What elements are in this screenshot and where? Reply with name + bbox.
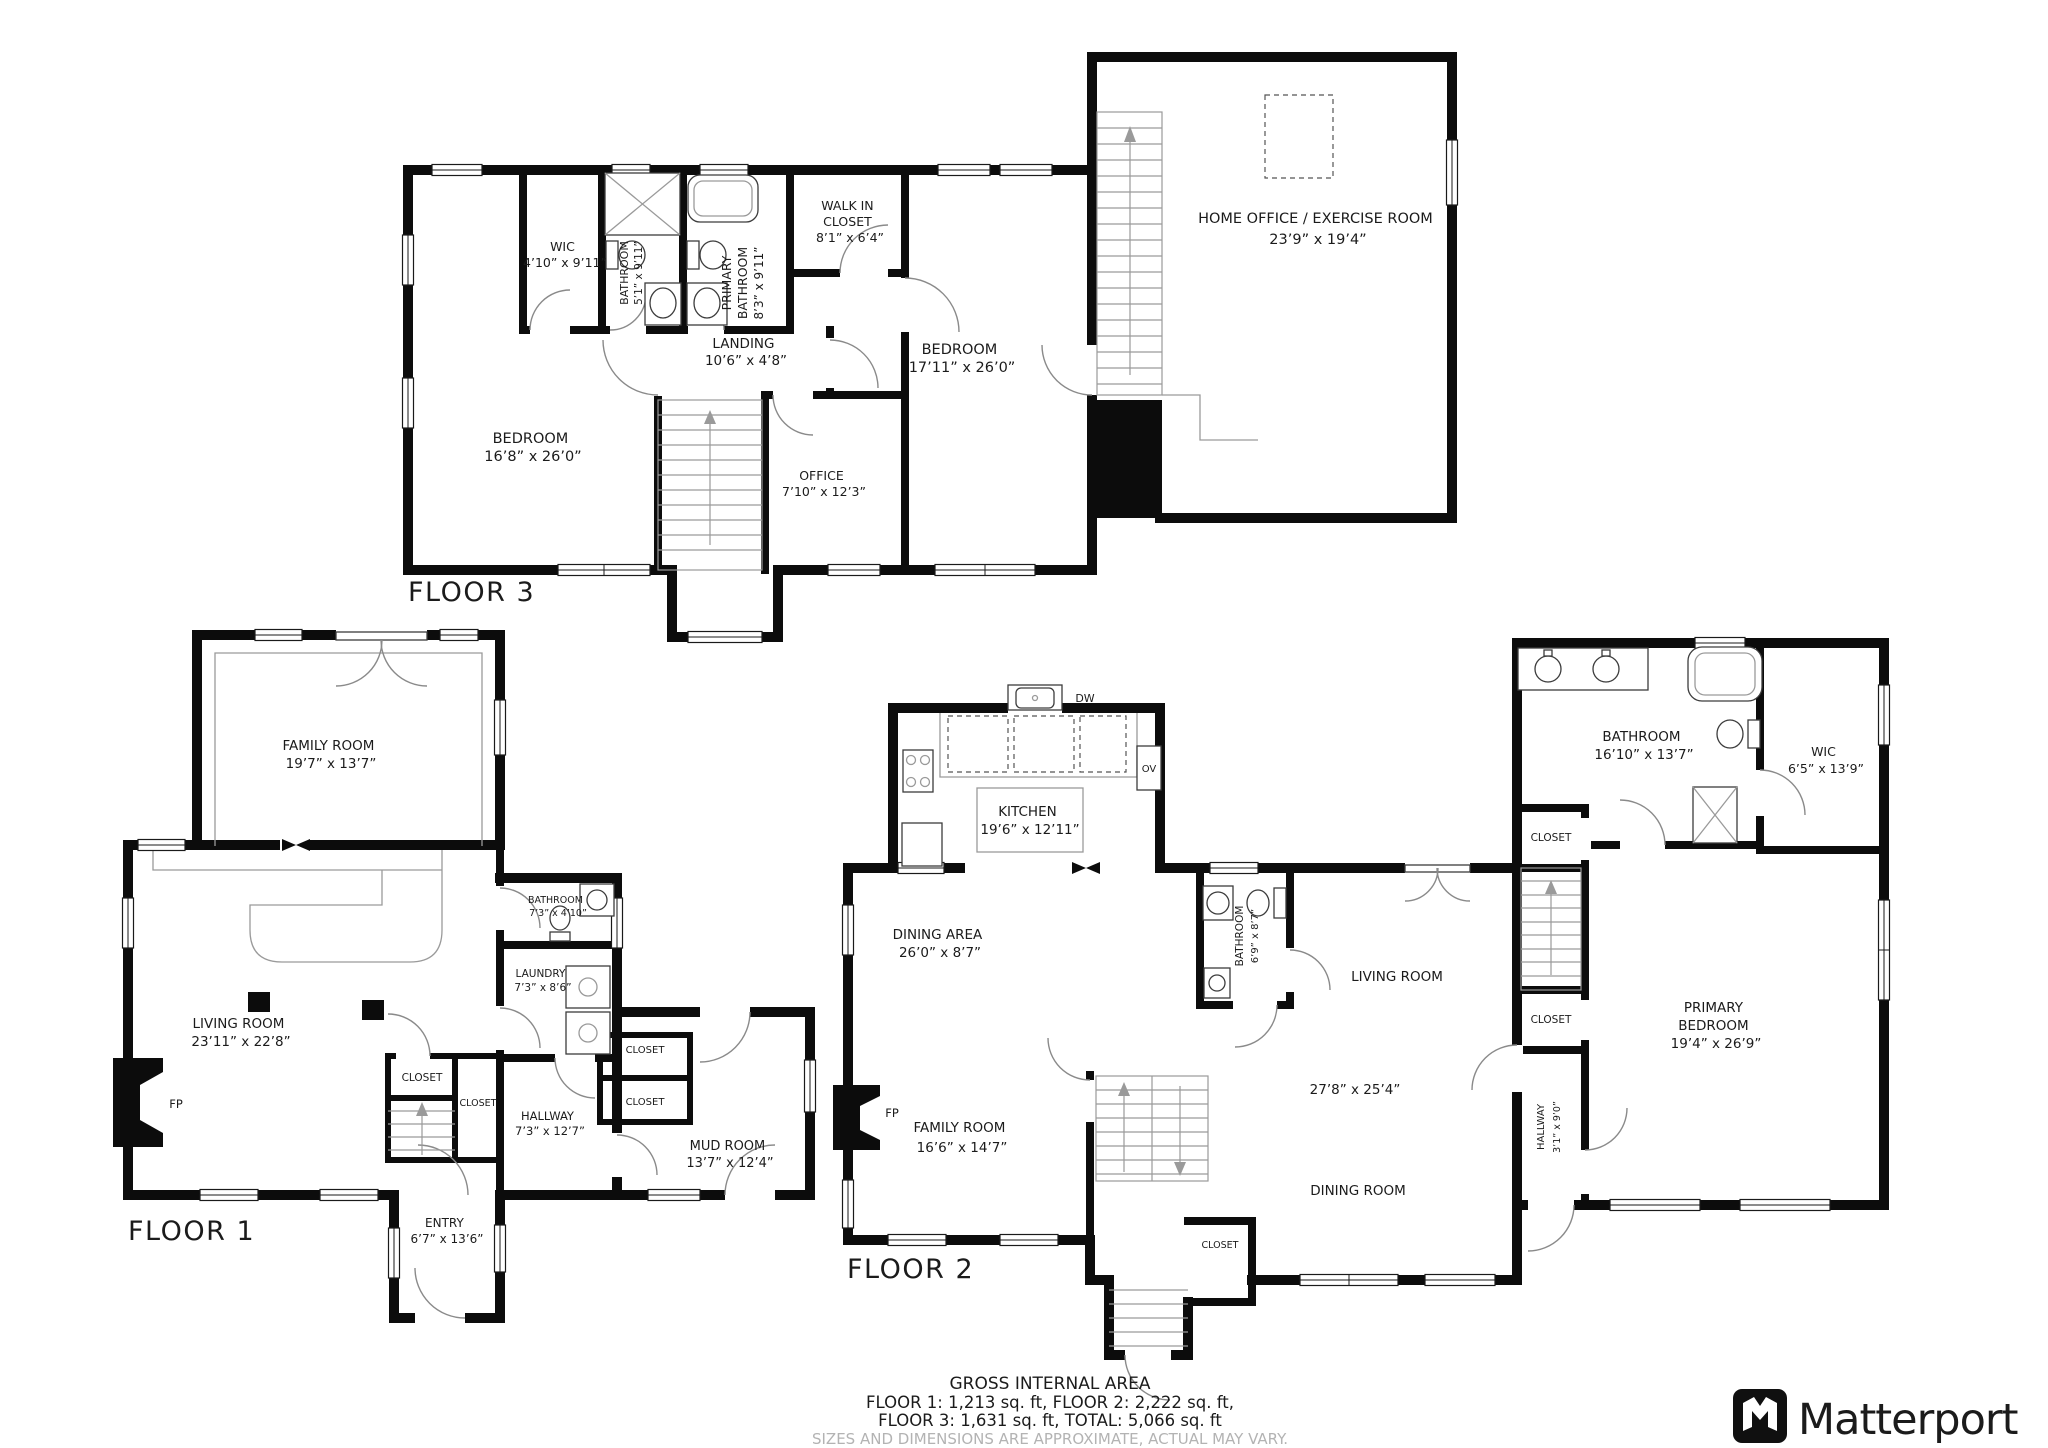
floor3-walk-in-closet-label: WALK IN CLOSET 8’1” x 6’4”: [816, 195, 884, 245]
floor1-bathroom-label: BATHROOM 7’3” x 4’10”: [528, 888, 588, 919]
floor3-plan: BEDROOM 16’8” x 26’0” WIC 4’10” x 9’11” …: [403, 57, 1458, 643]
suite-closet-a-label: CLOSET: [1531, 832, 1572, 844]
vanity-sinks-icon: [1518, 648, 1648, 690]
floor1-windows: [123, 630, 816, 1279]
floor3-labels: BEDROOM 16’8” x 26’0” WIC 4’10” x 9’11” …: [408, 195, 1438, 608]
floor2-fp-label: FP: [885, 1106, 899, 1120]
sink-icon: [645, 283, 681, 325]
floor3-stairs-down-icon: [658, 400, 762, 570]
floor3-title: FLOOR 3: [408, 577, 535, 608]
floor2-bathroom-label: BATHROOM: [1234, 906, 1246, 967]
floor1-stairs-icon: [388, 1102, 455, 1155]
floor2-title: FLOOR 2: [847, 1254, 974, 1285]
floor3-office-label: OFFICE 7’10” x 12’3”: [782, 465, 866, 499]
shower-icon: [1693, 787, 1737, 843]
kitchen-island-icon: [977, 788, 1083, 852]
floorplan-svg: BEDROOM 16’8” x 26’0” WIC 4’10” x 9’11” …: [0, 0, 2048, 1448]
floor2-bathroom-dims: 6’9” x 8’7”: [1250, 909, 1261, 963]
floor3-door-gaps: [530, 267, 1098, 401]
primary-bedroom-label: PRIMARY BEDROOM 19’4” x 26’9”: [1671, 997, 1762, 1052]
floor2-kitchen-label: KITCHEN 19’6” x 12’11”: [980, 801, 1079, 838]
kitchen-counter-icon: [940, 713, 1137, 777]
floor3-bathroom-dims: 5’1” x 9’11”: [633, 241, 645, 305]
floor1-closet-b-label: CLOSET: [460, 1098, 497, 1109]
floor2-main-stairs-icon: [1096, 1076, 1208, 1181]
shower-icon: [605, 173, 680, 235]
floor2-family-room-label: FAMILY ROOM 16’6” x 14’7”: [913, 1117, 1010, 1156]
floor3-landing-label: LANDING 10’6” x 4’8”: [705, 333, 787, 369]
sink-icon: [1203, 886, 1233, 920]
floor1-hallway-label: HALLWAY 7’3” x 12’7”: [515, 1105, 585, 1138]
toilet-icon: [1717, 720, 1760, 748]
footer-area-line1: FLOOR 1: 1,213 sq. ft, FLOOR 2: 2,222 sq…: [866, 1393, 1234, 1412]
skylight-icon: [1265, 95, 1333, 178]
floor1-title: FLOOR 1: [128, 1216, 255, 1247]
floor3-fixtures: [605, 95, 1333, 440]
suite-bathroom-label: BATHROOM 16’10” x 13’7”: [1594, 726, 1693, 763]
footer-area-line2: FLOOR 3: 1,631 sq. ft, TOTAL: 5,066 sq. …: [878, 1411, 1222, 1430]
floor2-dining-area-label: DINING AREA 26’0” x 8’7”: [893, 924, 988, 961]
brand-wordmark: Matterport: [1798, 1395, 2018, 1445]
floor2-suite-fixtures: [1518, 647, 1762, 843]
floor3-step-lines: [1162, 395, 1258, 440]
floorplan-canvas: BEDROOM 16’8” x 26’0” WIC 4’10” x 9’11” …: [0, 0, 2048, 1448]
floor3-bathroom-label: BATHROOM: [618, 241, 631, 305]
floor2-exterior-walls: [848, 643, 1884, 1355]
floor3-primary-bathroom-label2: BATHROOM: [735, 247, 750, 319]
fireplace-icon: [113, 1058, 163, 1147]
floor2-dining-room-label: DINING ROOM: [1310, 1183, 1406, 1199]
floor1-laundry-label: LAUNDRY 7’3” x 8’6”: [514, 962, 571, 994]
post-icon: [248, 992, 270, 1012]
floor1-plan: FAMILY ROOM 19’7” x 13’7” LIVING ROOM 23…: [113, 629, 816, 1324]
floor1-labels: FAMILY ROOM 19’7” x 13’7” LIVING ROOM 23…: [128, 735, 774, 1247]
pantry-icon: [902, 823, 942, 866]
floor2-plan: DW OV KITCHEN 19’6” x 12’11” DINING AREA…: [833, 638, 1890, 1401]
floor2-great-room-dims: 27’8” x 25’4”: [1310, 1082, 1401, 1098]
floor1-entry-label: ENTRY 6’7” x 13’6”: [411, 1212, 484, 1246]
floor3-bedroom-right-label: BEDROOM 17’11” x 26’0”: [909, 339, 1016, 376]
floor3-home-office-label: HOME OFFICE / EXERCISE ROOM 23’9” x 19’4…: [1198, 208, 1438, 248]
suite-closet-b-label: CLOSET: [1531, 1014, 1572, 1026]
floor1-mud-room-label: MUD ROOM 13’7” x 12’4”: [686, 1135, 773, 1171]
bathtub-icon: [1688, 647, 1762, 701]
kitchen-bar-icon: [153, 850, 442, 962]
washer-dryer-icon: [566, 966, 610, 1054]
floor2-entry-stairs-icon: [1109, 1290, 1188, 1346]
cooktop-icon: [903, 750, 933, 792]
floor2-door-gaps: [1084, 770, 1766, 1361]
floor3-primary-bathroom-label: PRIMARY: [719, 255, 734, 310]
footer-disclaimer: SIZES AND DIMENSIONS ARE APPROXIMATE, AC…: [812, 1430, 1288, 1448]
post-icon: [362, 1000, 384, 1020]
floor2-labels: DW OV KITCHEN 19’6” x 12’11” DINING AREA…: [847, 692, 1864, 1285]
floor1-fp-label: FP: [169, 1097, 183, 1111]
kitchen-sink-icon: [1008, 685, 1062, 710]
suite-hallway-dims: 3’1” x 9’0”: [1552, 1101, 1563, 1153]
floor2-suite-stairs-icon: [1521, 868, 1581, 990]
brand-logo: Matterport: [1733, 1389, 2018, 1445]
bathtub-icon: [688, 175, 758, 222]
floor3-bedroom-left-label: BEDROOM 16’8” x 26’0”: [484, 428, 581, 465]
sink-icon: [1204, 968, 1230, 998]
floor1-closet-a-label: CLOSET: [402, 1072, 443, 1084]
floor1-mud-closet-b-label: CLOSET: [626, 1097, 666, 1108]
opening-marker-icon: [1072, 862, 1100, 874]
suite-wic-label: WIC 6’5” x 13’9”: [1788, 741, 1864, 776]
floor2-closet-label: CLOSET: [1202, 1240, 1239, 1251]
floor3-wic-label: WIC 4’10” x 9’11”: [523, 236, 607, 270]
floor3-solid-mass: [1087, 400, 1162, 518]
floor1-family-room-label: FAMILY ROOM 19’7” x 13’7”: [282, 735, 379, 772]
floor1-mud-closet-a-label: CLOSET: [626, 1045, 666, 1056]
suite-hallway-label: HALLWAY: [1536, 1103, 1547, 1150]
floor2-ov-label: OV: [1142, 764, 1157, 775]
fireplace-icon: [833, 1085, 880, 1150]
floor2-living-room-label: LIVING ROOM: [1351, 969, 1443, 985]
floor2-dw-label: DW: [1075, 692, 1094, 705]
floor3-primary-bathroom-dims: 8’3” x 9’11”: [752, 247, 766, 320]
floor3-stairs-up-icon: [1097, 112, 1162, 395]
footer: GROSS INTERNAL AREA FLOOR 1: 1,213 sq. f…: [812, 1374, 1288, 1448]
footer-gross-area-title: GROSS INTERNAL AREA: [949, 1374, 1150, 1394]
floor1-living-room-label: LIVING ROOM 23’11” x 22’8”: [191, 1013, 290, 1050]
